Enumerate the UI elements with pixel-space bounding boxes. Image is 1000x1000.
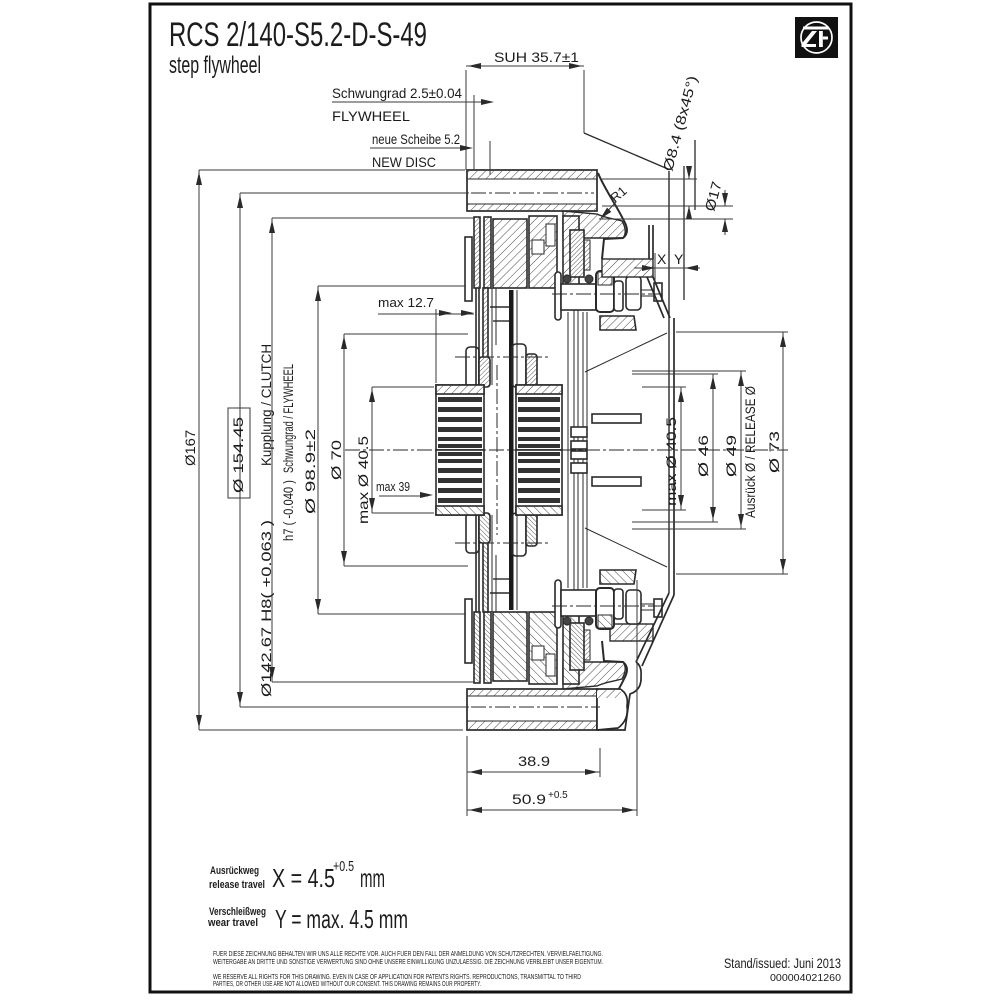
svg-text:SUH 35.7±1: SUH 35.7±1	[494, 49, 579, 65]
svg-text:X: X	[657, 251, 667, 267]
svg-text:mm: mm	[360, 863, 385, 893]
svg-text:max 39: max 39	[376, 479, 410, 494]
svg-text:Ø 46: Ø 46	[695, 435, 711, 477]
svg-text:Stand/issued: Juni 2013: Stand/issued: Juni 2013	[724, 955, 841, 971]
svg-text:FLYWHEEL: FLYWHEEL	[332, 108, 410, 124]
svg-text:Schwungrad / FLYWHEEL: Schwungrad / FLYWHEEL	[280, 364, 296, 473]
svg-text:max Ø 40.5: max Ø 40.5	[663, 417, 679, 506]
svg-text:X = 4.5: X = 4.5	[272, 863, 335, 893]
svg-text:Ø142.67 H8( +0.063 ): Ø142.67 H8( +0.063 )	[258, 520, 274, 697]
svg-text:50.9: 50.9	[512, 791, 546, 807]
svg-text:Ø 73: Ø 73	[766, 431, 782, 473]
svg-text:Ø 98.9±2: Ø 98.9±2	[302, 429, 318, 514]
svg-text:Ø167: Ø167	[182, 430, 198, 466]
svg-text:RCS 2/140-S5.2-D-S-49: RCS 2/140-S5.2-D-S-49	[169, 16, 427, 54]
svg-text:Ausrück Ø / RELEASE Ø: Ausrück Ø / RELEASE Ø	[742, 386, 758, 518]
svg-text:38.9: 38.9	[518, 753, 550, 769]
svg-text:Ø 154.45: Ø 154.45	[230, 417, 246, 493]
svg-text:max Ø 40.5: max Ø 40.5	[355, 436, 371, 524]
svg-text:Y = max. 4.5 mm: Y = max. 4.5 mm	[275, 904, 408, 934]
svg-text:Ø 70: Ø 70	[328, 440, 344, 480]
svg-text:Ausrückweg: Ausrückweg	[210, 865, 259, 877]
svg-text:release travel: release travel	[209, 879, 265, 891]
svg-text:WEITERGABE AN DRITTE UND SONST: WEITERGABE AN DRITTE UND SONSTIGE VERWER…	[213, 957, 603, 966]
svg-text:000004021260: 000004021260	[770, 973, 841, 984]
svg-text:NEW DISC: NEW DISC	[372, 154, 436, 170]
svg-text:Ø 49: Ø 49	[723, 435, 739, 477]
svg-text:Kupplung / CLUTCH: Kupplung / CLUTCH	[258, 344, 274, 466]
svg-text:Y: Y	[674, 251, 684, 267]
svg-text:h7 ( -0.040 ): h7 ( -0.040 )	[280, 480, 296, 541]
svg-text:max 12.7: max 12.7	[378, 295, 434, 310]
svg-text:Schwungrad 2.5±0.04: Schwungrad 2.5±0.04	[332, 85, 462, 101]
svg-text:PARTIES, OR OTHER USE ARE NOT: PARTIES, OR OTHER USE ARE NOT ALLOWED WI…	[213, 979, 481, 988]
svg-text:neue Scheibe 5.2: neue Scheibe 5.2	[372, 131, 460, 147]
svg-text:+0.5: +0.5	[333, 858, 354, 875]
svg-text:wear travel: wear travel	[207, 917, 258, 929]
svg-text:+0.5: +0.5	[548, 790, 568, 801]
svg-text:step flywheel: step flywheel	[169, 52, 261, 79]
